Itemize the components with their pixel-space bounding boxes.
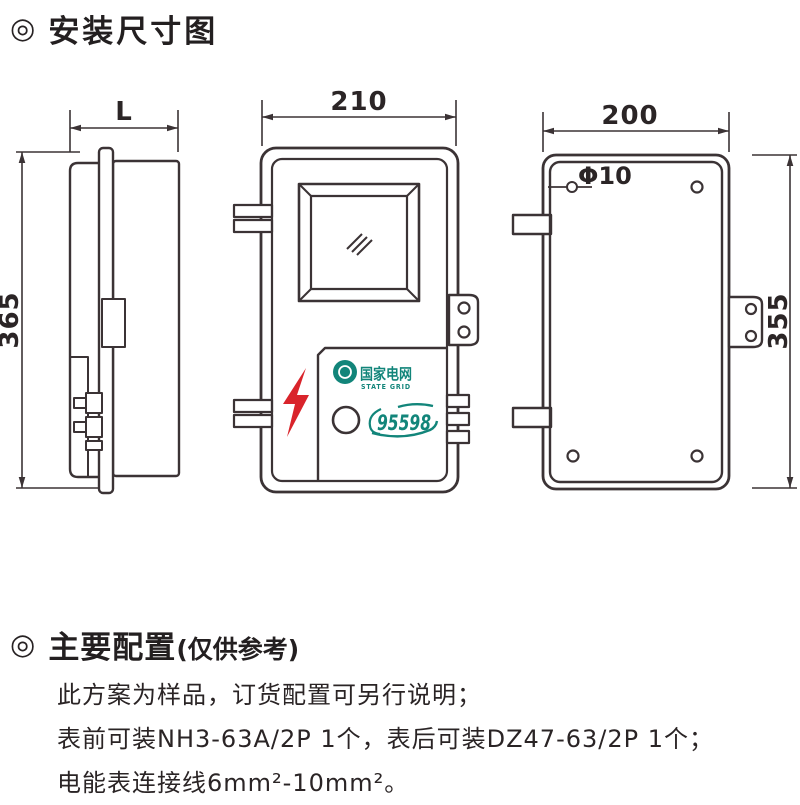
config-notes: 此方案为样品，订货配置可另行说明； 表前可装NH3-63A/2P 1个，表后可装… xyxy=(57,681,790,797)
back-view: 200 Φ10 355 xyxy=(513,101,797,489)
title-bullet-icon: ◎ xyxy=(10,14,35,43)
page-title: 安装尺寸图 xyxy=(48,6,218,51)
side-width-label: L xyxy=(115,97,133,127)
side-latch-profile xyxy=(102,299,125,347)
front-view: 210 xyxy=(234,90,478,492)
bracket-hole-bottom xyxy=(746,331,756,341)
config-note-line: 此方案为样品，订货配置可另行说明； xyxy=(57,681,790,710)
config-note-line: 电能表连接线6mm²-10mm²。 xyxy=(57,769,790,798)
page-header: ◎ 安装尺寸图 xyxy=(10,6,218,51)
config-note-line: 表前可装NH3-63A/2P 1个，表后可装DZ47-63/2P 1个； xyxy=(57,725,790,754)
side-height-label: 365 xyxy=(0,291,25,348)
side-view: L 365 xyxy=(0,97,179,493)
lock-hole xyxy=(333,407,359,433)
config-bullet-icon: ◎ xyxy=(10,630,35,659)
bracket-hole-top xyxy=(746,304,756,314)
hole-diameter-label: Φ10 xyxy=(578,162,632,190)
back-height-label: 355 xyxy=(764,292,794,349)
config-heading-text: 主要配置 xyxy=(48,622,176,667)
latch-hole-top xyxy=(459,303,470,314)
front-width-label: 210 xyxy=(330,90,387,117)
installation-drawing: L 365 210 xyxy=(0,90,800,570)
config-heading: 主要配置(仅供参考) xyxy=(48,622,299,667)
back-width-label: 200 xyxy=(601,101,658,131)
back-mount-bracket xyxy=(729,297,762,347)
config-heading-row: ◎ 主要配置(仅供参考) xyxy=(10,622,790,667)
meter-window xyxy=(299,184,419,301)
state-grid-subtitle: STATE GRID xyxy=(361,383,411,391)
latch-hole-bottom xyxy=(459,327,470,338)
config-heading-note: (仅供参考) xyxy=(176,630,299,666)
state-grid-name: 国家电网 xyxy=(360,365,412,383)
state-grid-emblem-icon xyxy=(333,360,357,384)
hotline-number: 95598 xyxy=(377,411,431,435)
config-section: ◎ 主要配置(仅供参考) 此方案为样品，订货配置可另行说明； 表前可装NH3-6… xyxy=(10,622,790,805)
back-outer-shell xyxy=(543,155,729,489)
front-right-vent-tabs xyxy=(447,395,469,443)
